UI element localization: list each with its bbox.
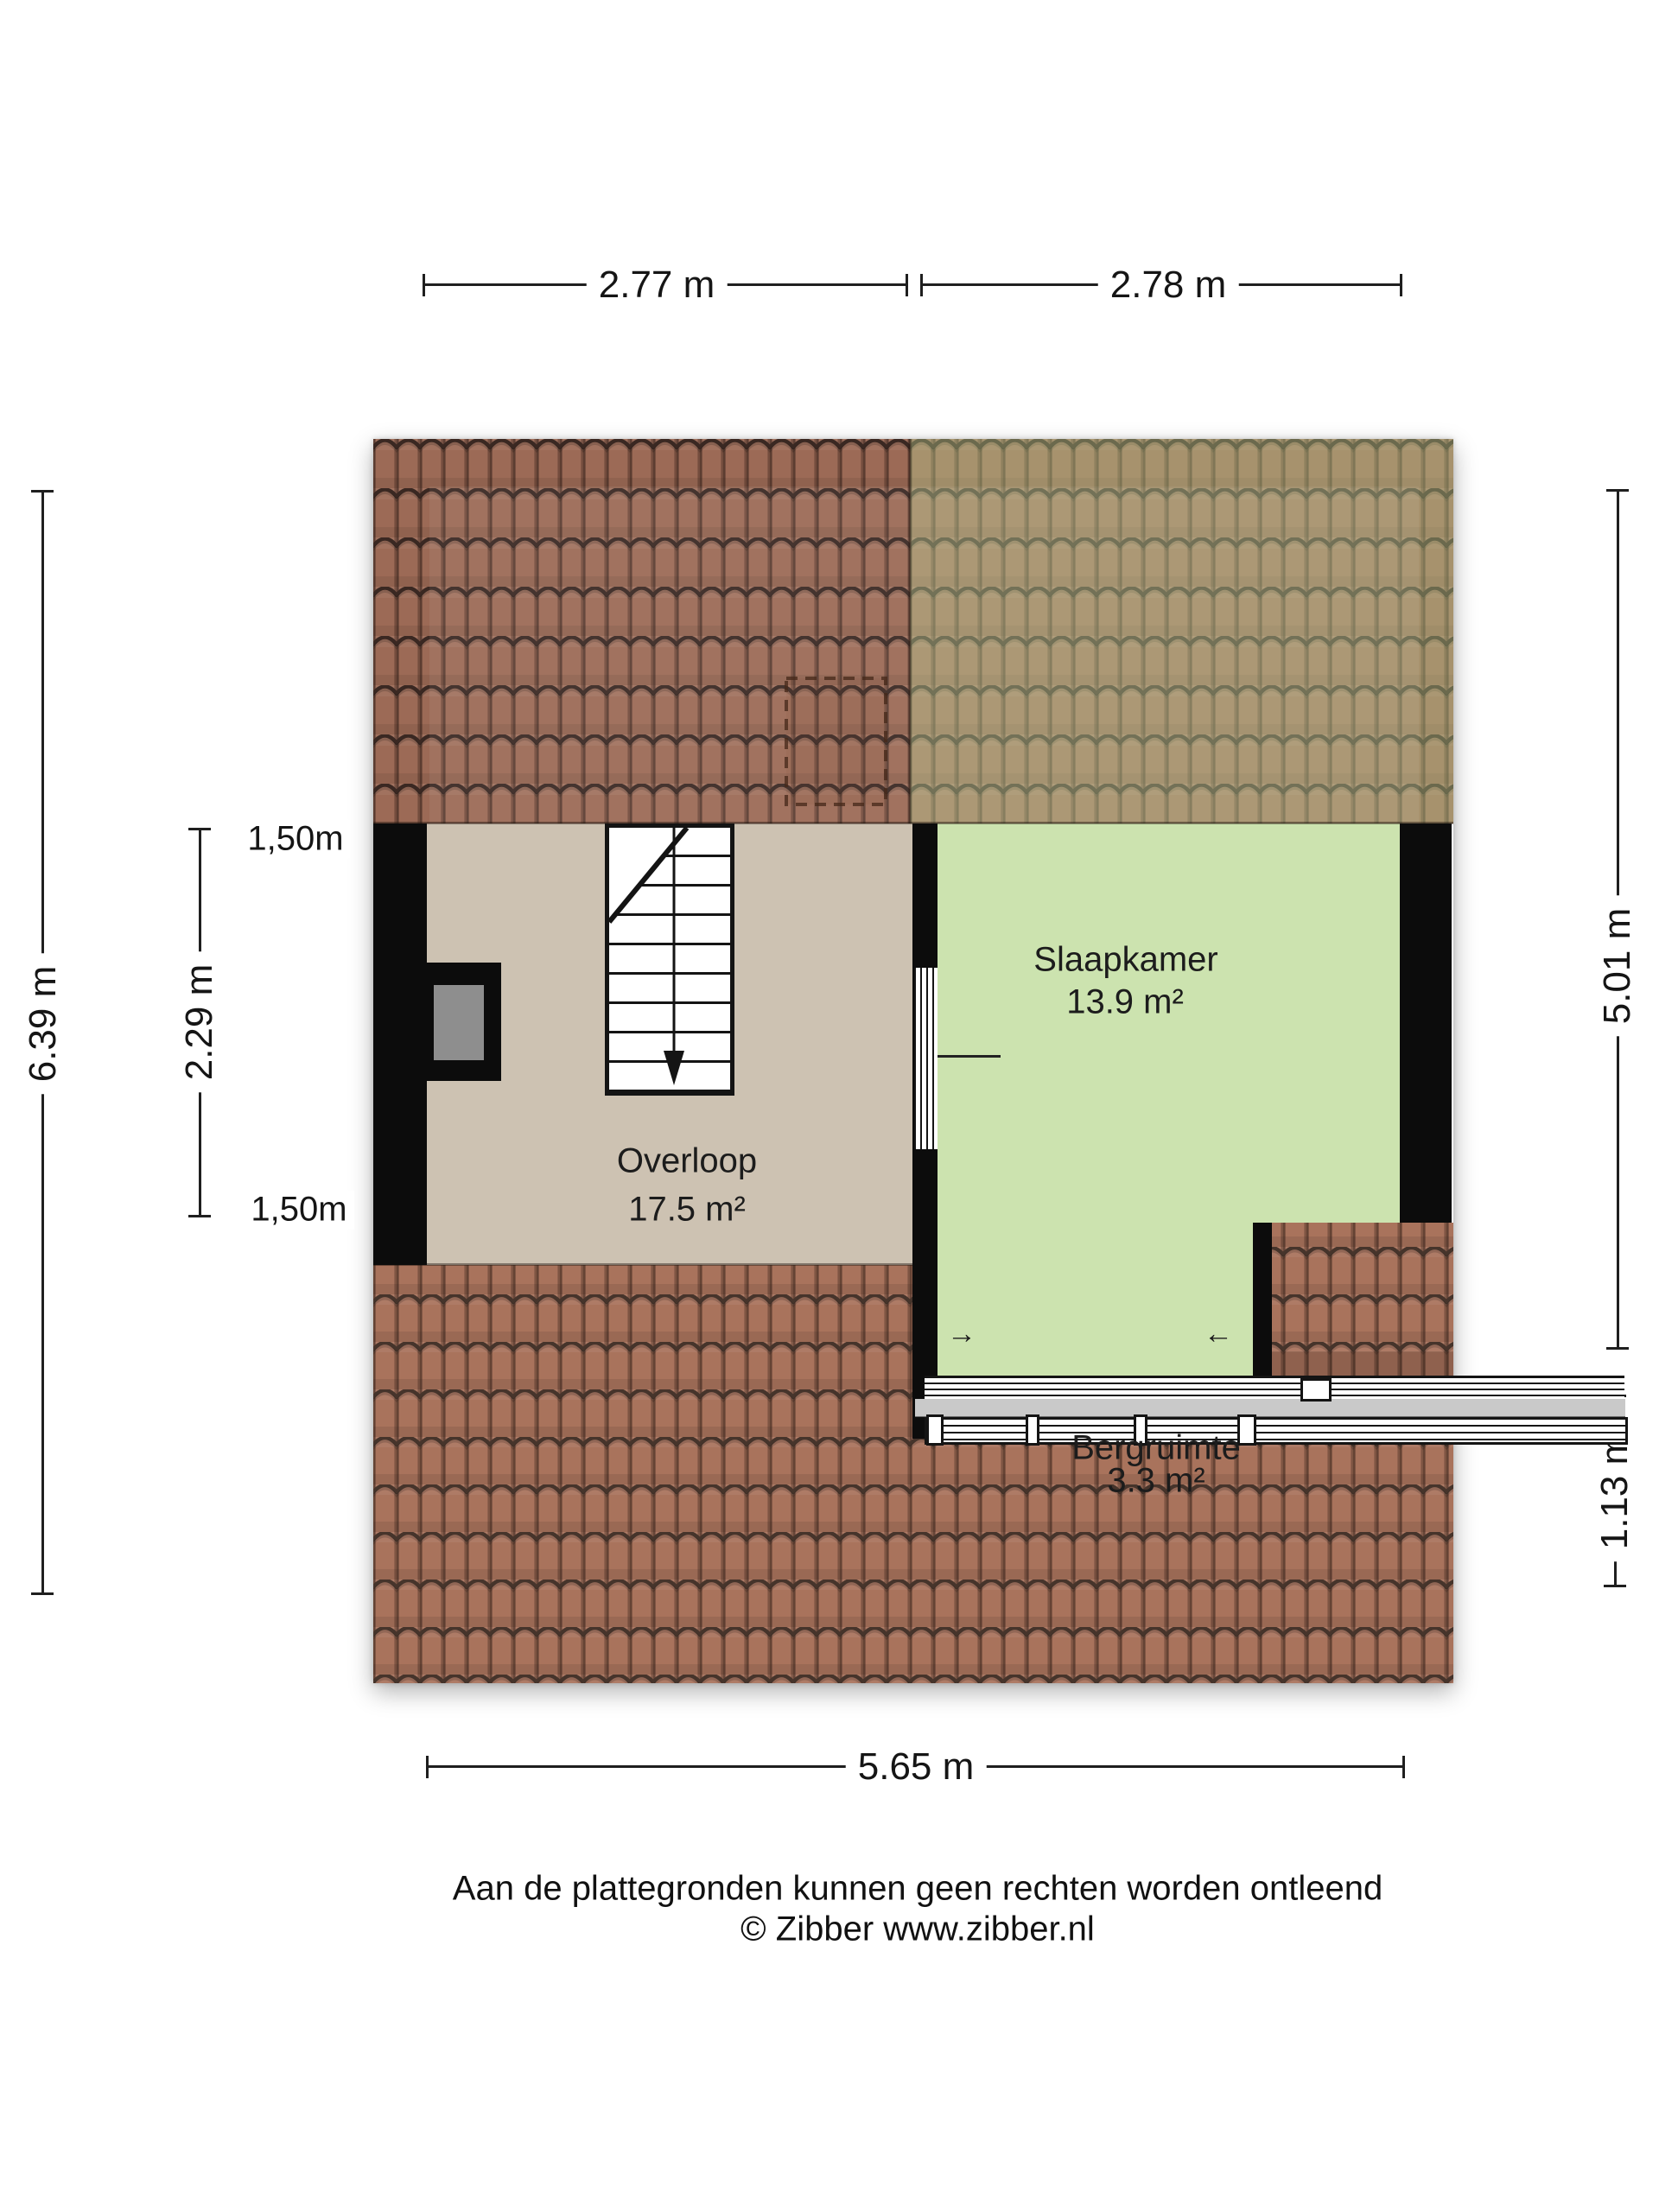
dim-label-left-seg-top: 1,50m (240, 820, 350, 859)
dim-tick (31, 490, 54, 493)
dim-tick (1400, 274, 1402, 296)
dim-tick (1604, 1585, 1626, 1587)
dim-tick (31, 1592, 54, 1595)
dim-label-bottom: 5.65 m (846, 1745, 987, 1789)
stair-rail-and-arrow (609, 828, 730, 1091)
skylight-dashed-outline (786, 678, 886, 804)
dim-tick (426, 1756, 429, 1778)
room-label-slaapkamer: Slaapkamer (1033, 941, 1217, 980)
dim-tick (1606, 489, 1629, 492)
window-post (1026, 1414, 1039, 1446)
dim-tick (188, 1215, 211, 1217)
chimney (427, 963, 501, 1081)
wall-left (373, 823, 427, 1265)
dim-label-left-inner: 2.29 m (178, 952, 221, 1093)
dim-label-top-left: 2.77 m (587, 264, 728, 307)
chimney-core (434, 985, 484, 1060)
window-sill (915, 1399, 1625, 1417)
window-upper-frame (925, 1376, 1624, 1399)
window-arrow-left-icon: ← (1204, 1318, 1233, 1351)
dim-label-top-right: 2.78 m (1098, 264, 1239, 307)
floorplan-page: → ← Overloop 17.5 m² Slaapkamer 13.9 m² … (0, 0, 1659, 2212)
dim-tick (188, 828, 211, 830)
dim-tick (906, 274, 908, 296)
wall-right (1400, 823, 1452, 1223)
window-post (926, 1414, 944, 1446)
room-area-overloop: 17.5 m² (628, 1191, 746, 1230)
roof-edge-lower-left (373, 1263, 912, 1266)
staircase (605, 823, 734, 1096)
window-end-cap (1300, 1378, 1332, 1402)
dim-label-left-seg-bottom: 1,50m (244, 1191, 353, 1230)
window-arrow-right-icon: → (947, 1318, 976, 1351)
roof-notch-shadow (1272, 1351, 1453, 1377)
footer-credit: © Zibber www.zibber.nl (741, 1910, 1095, 1949)
room-area-slaapkamer: 13.9 m² (1066, 983, 1184, 1022)
stair-down-arrow-icon (664, 1051, 684, 1085)
dim-tick (920, 274, 923, 296)
dim-label-right-outer: 5.01 m (1596, 896, 1639, 1037)
floorplan: → ← Overloop 17.5 m² Slaapkamer 13.9 m² … (373, 439, 1453, 1683)
roof-notch (1253, 1223, 1453, 1683)
roof-highlight (429, 486, 1419, 823)
dim-tick (423, 274, 425, 296)
door-leaf (914, 968, 938, 1149)
room-area-bergruimte: 3.3 m² (1107, 1462, 1205, 1501)
footer-disclaimer: Aan de plattegronden kunnen geen rechten… (453, 1870, 1382, 1909)
dim-tick (1606, 1347, 1629, 1350)
room-label-overloop: Overloop (617, 1142, 757, 1181)
door-swing-line (938, 1055, 1001, 1058)
dim-label-left-outer: 6.39 m (22, 954, 65, 1095)
dim-tick (1402, 1756, 1405, 1778)
